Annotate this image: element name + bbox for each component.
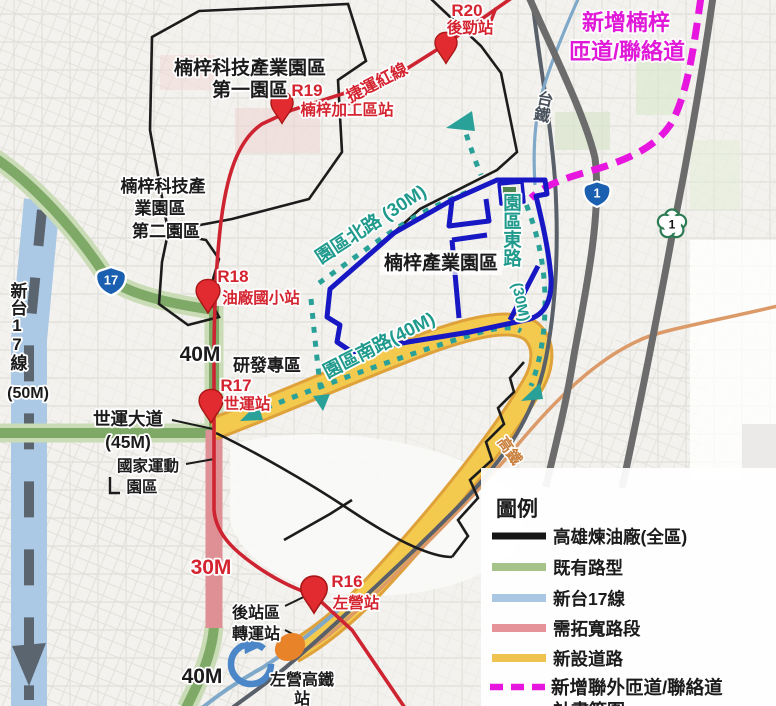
legend-label-plan-area: 計畫範圍: [553, 700, 625, 706]
backstation-label-line1: 後站區: [232, 603, 280, 622]
tai17-label: 新台17線: [8, 281, 28, 372]
station-r17-name: 世運站: [224, 394, 271, 413]
sports-blvd-label: 世運大道: [93, 409, 163, 429]
park2-label-line2: 業園區: [135, 198, 186, 218]
park1-label-line1: 楠梓科技產業園區: [173, 56, 326, 79]
shield-1-number: 1: [593, 187, 600, 201]
park2-label-line3: 第二園區: [132, 221, 200, 241]
legend-label-existing-road: 既有路型: [553, 558, 623, 578]
hsr-station-label-line1: 左營高鐵: [269, 670, 334, 689]
park2-label-line1: 楠梓科技產: [121, 176, 206, 196]
legend-title: 圖例: [496, 497, 538, 521]
width-40m-bottom-label: 40M: [182, 665, 223, 688]
legend-label-ramp: 新增聯外匝道/聯絡道: [551, 677, 723, 698]
industrial-park-label: 楠梓產業園區: [383, 251, 498, 274]
new-ramp-label-line1: 新增楠梓: [582, 10, 670, 35]
planning-map: 17 1 1 楠梓科技產業園區 第一園區 楠梓科技產 業園區 第二園區 楠梓產業…: [0, 0, 776, 706]
station-r19-code: R19: [291, 81, 322, 100]
national-sports-label-line2: 園區: [126, 478, 157, 496]
legend: 圖例 高雄煉油廠(全區) 既有路型 新台17線 需拓寬路段 新設道路 新增聯外匝…: [481, 468, 776, 706]
shield-17-number: 17: [104, 273, 118, 288]
station-r20-name: 後勁站: [447, 18, 494, 37]
sports-blvd-width-label: (45M): [105, 432, 151, 452]
legend-label-widen: 需拓寬路段: [553, 619, 641, 639]
national-sports-label-line1: 國家運動: [117, 456, 179, 475]
east-rd-label: 園區東路: [502, 193, 523, 268]
legend-label-new-road: 新設道路: [553, 649, 623, 669]
station-r18-code: R18: [217, 267, 248, 286]
station-r20-code: R20: [451, 1, 482, 20]
park-patch: [690, 140, 740, 210]
park1-label-line2: 第一園區: [212, 78, 288, 101]
station-r18-name: 油廠國小站: [222, 288, 300, 307]
tai17-width-label: (50M): [7, 385, 49, 402]
rd-zone-label: 研發專區: [233, 355, 301, 375]
map-canvas: 17 1 1 楠梓科技產業園區 第一園區 楠梓科技產 業園區 第二園區 楠梓產業…: [0, 0, 776, 706]
new-ramp-label-line2: 匝道/聯絡道: [569, 39, 685, 64]
hsr-station-label-line2: 站: [294, 689, 310, 706]
width-30m-label: 30M: [191, 556, 232, 579]
width-40m-top-label: 40M: [180, 343, 221, 366]
legend-label-tai17: 新台17線: [553, 589, 625, 609]
station-r16-code: R16: [331, 572, 362, 591]
freeway-1-number: 1: [669, 218, 676, 232]
legend-label-refinery: 高雄煉油廠(全區): [553, 527, 687, 547]
backstation-label-line2: 轉運站: [232, 624, 280, 643]
station-r16-name: 左營站: [332, 593, 380, 612]
park-patch: [636, 60, 681, 115]
tai17-corridor: [12, 200, 46, 706]
station-r19-name: 楠梓加工區站: [299, 100, 394, 119]
station-r17-code: R17: [220, 376, 251, 395]
